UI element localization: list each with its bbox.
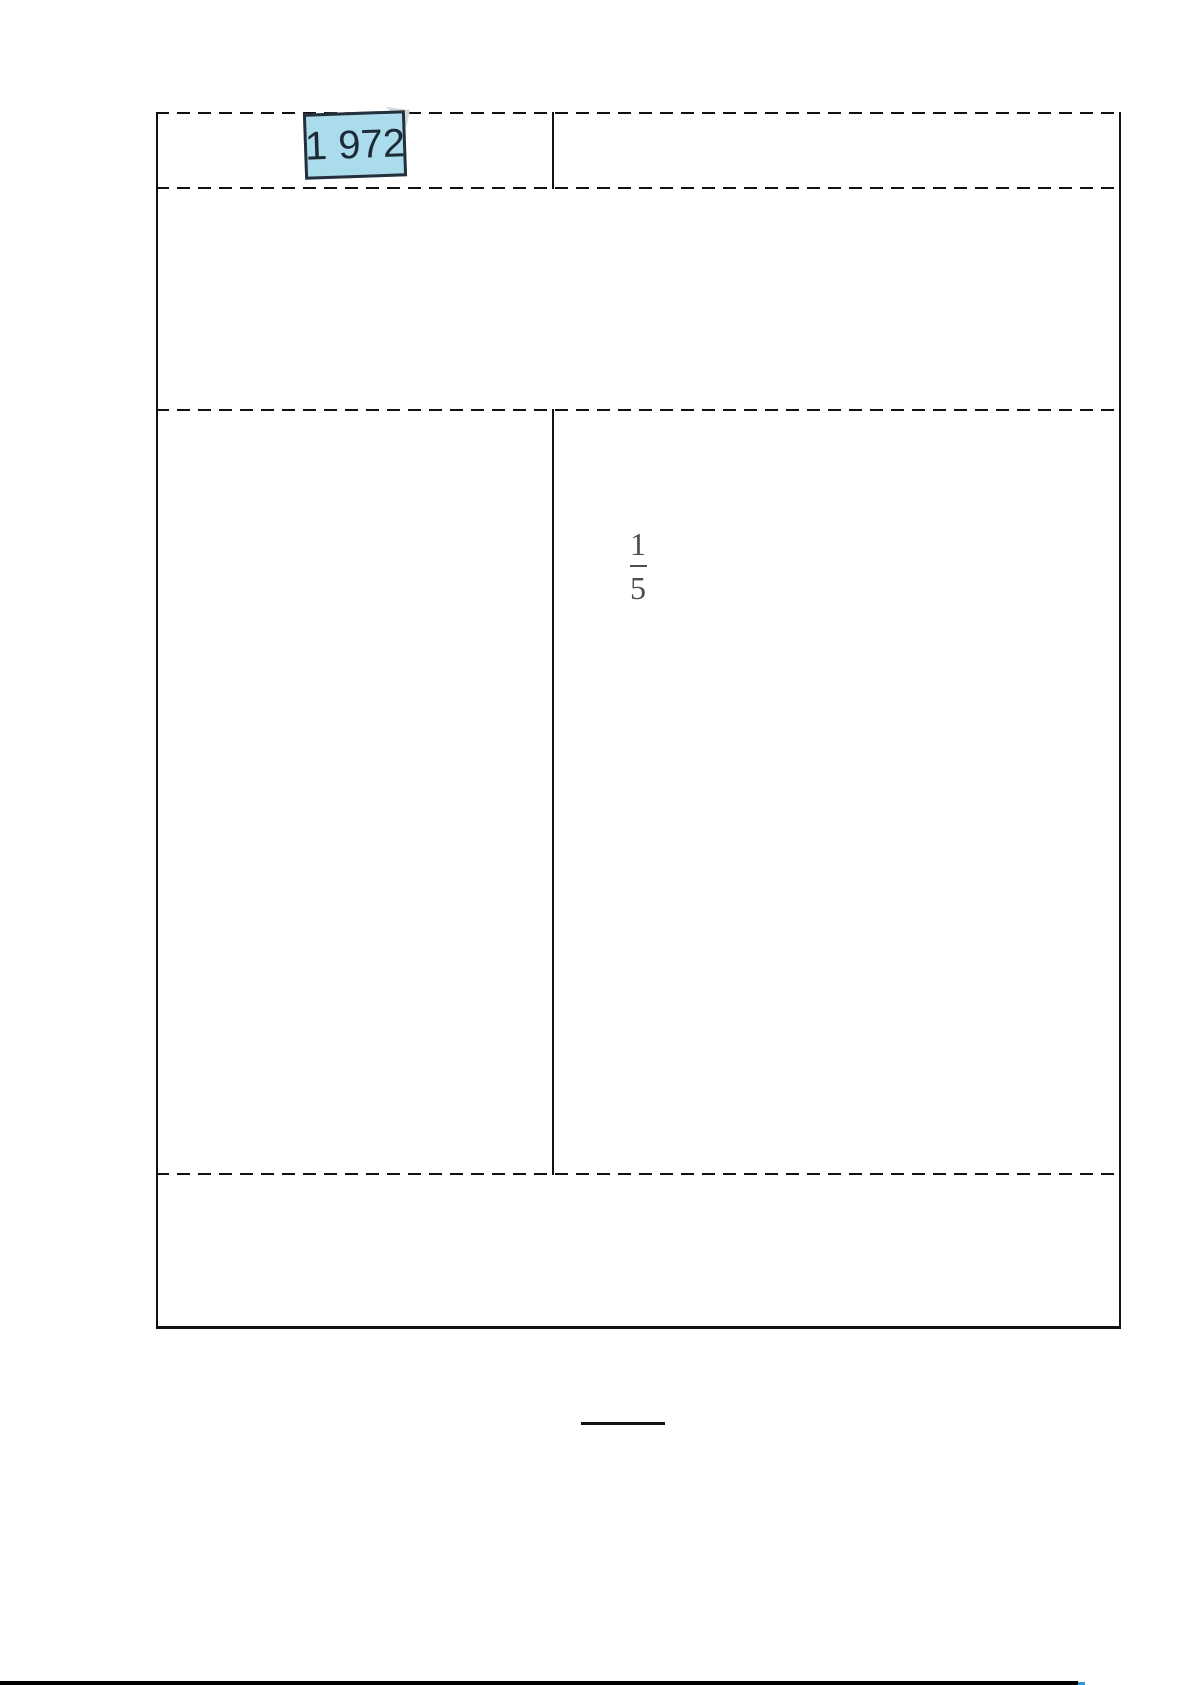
fraction-denominator: 5 bbox=[630, 572, 646, 604]
answer-line bbox=[581, 1422, 665, 1425]
table-border-right bbox=[1119, 112, 1121, 1329]
table-column-divider-row3 bbox=[552, 409, 554, 1175]
worksheet-page: 1 972 1 5 bbox=[0, 0, 1192, 1685]
fraction-bar bbox=[630, 565, 647, 567]
table-row-divider-3 bbox=[156, 1173, 1121, 1175]
table-row-divider-1 bbox=[156, 187, 1121, 189]
table-border-left bbox=[156, 112, 158, 1329]
fraction-one-fifth: 1 5 bbox=[622, 528, 654, 604]
page-bottom-edge bbox=[0, 1681, 1078, 1685]
table-border-bottom bbox=[156, 1326, 1121, 1329]
table-row-divider-2 bbox=[156, 409, 1121, 411]
year-label-text: 1 972 bbox=[304, 123, 405, 166]
table-border-top bbox=[156, 112, 1121, 114]
table-column-divider-row1 bbox=[552, 112, 554, 189]
year-label-box: 1 972 bbox=[303, 110, 407, 180]
fraction-numerator: 1 bbox=[630, 528, 646, 560]
